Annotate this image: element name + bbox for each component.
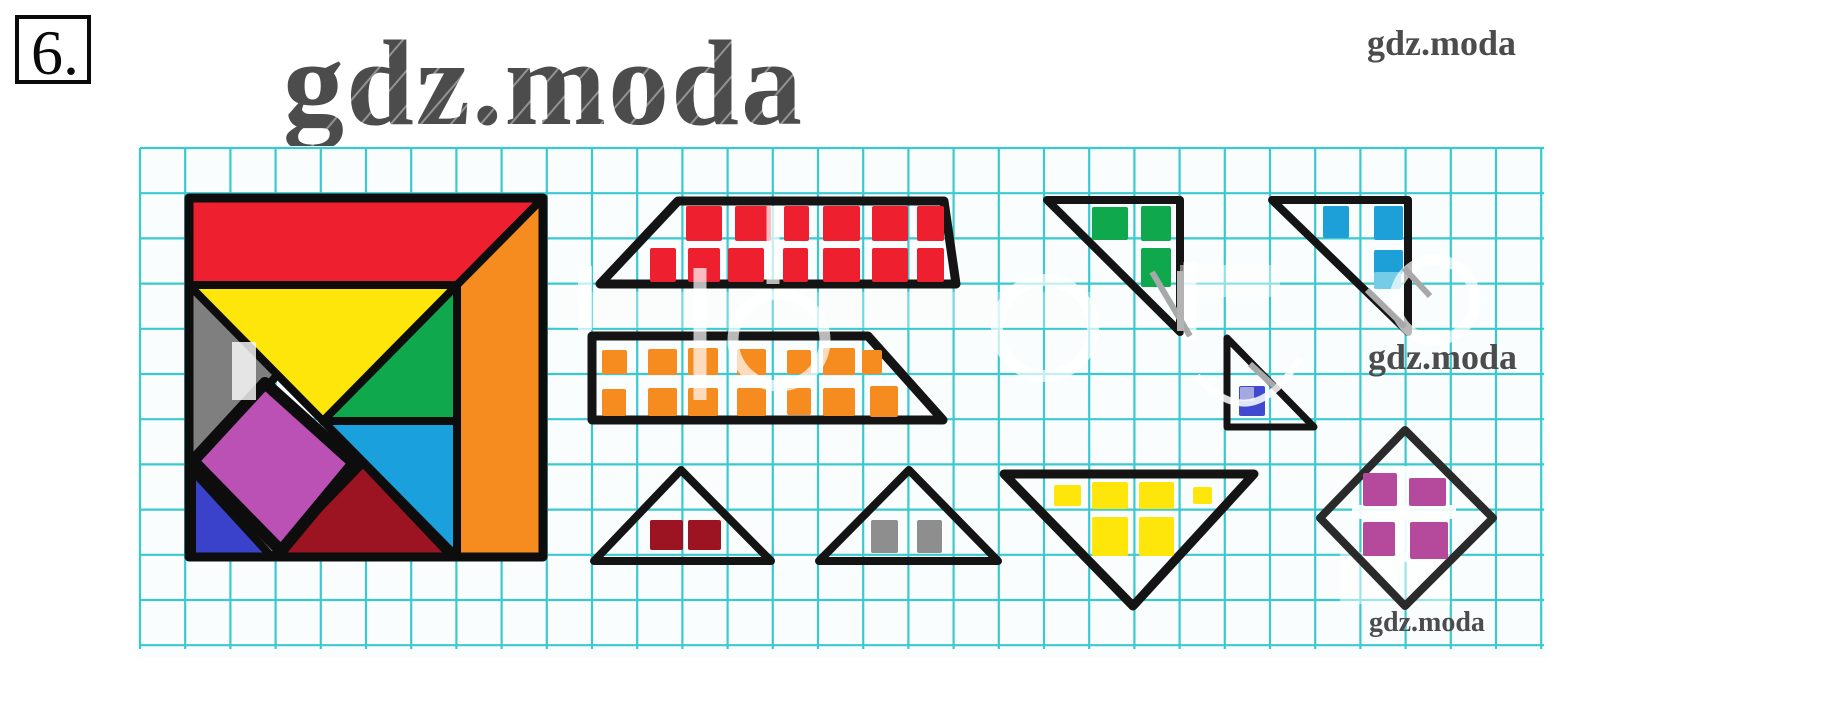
svg-text:gdz.moda: gdz.moda xyxy=(1367,23,1516,63)
svg-text:6.: 6. xyxy=(31,17,79,88)
svg-text:gdz.moda: gdz.moda xyxy=(1368,337,1517,377)
svg-text:gdz.moda: gdz.moda xyxy=(1369,607,1485,638)
